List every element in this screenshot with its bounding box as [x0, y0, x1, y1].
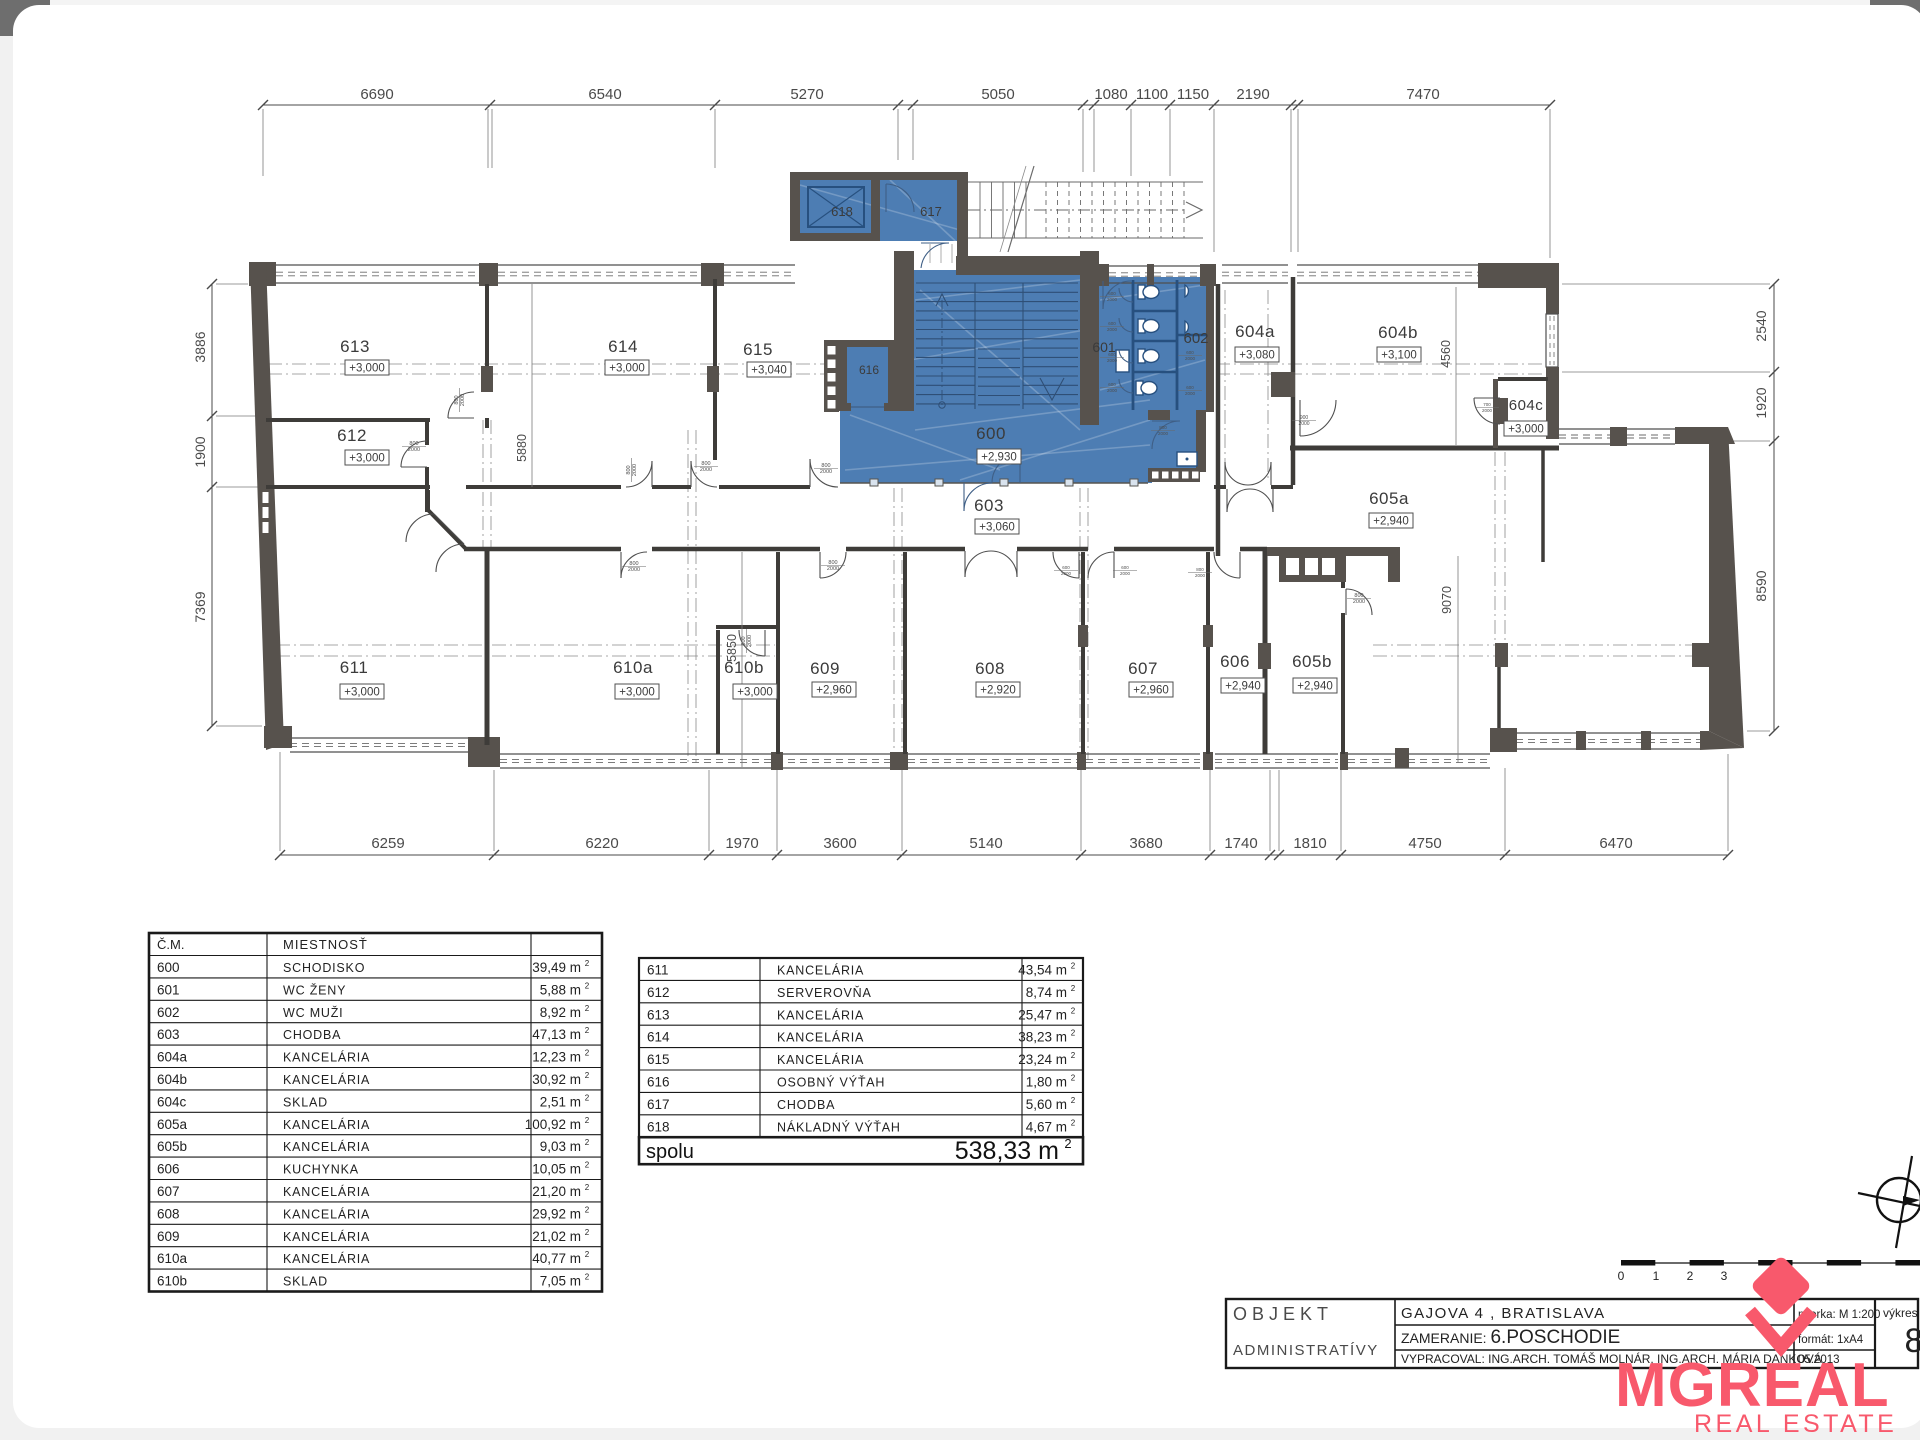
- svg-text:KUCHYNKA: KUCHYNKA: [283, 1163, 359, 1177]
- svg-text:2000: 2000: [1120, 571, 1131, 576]
- svg-text:REAL ESTATE: REAL ESTATE: [1694, 1410, 1897, 1438]
- svg-text:603: 603: [974, 496, 1004, 515]
- svg-text:2190: 2190: [1236, 86, 1269, 103]
- svg-text:KANCELÁRIA: KANCELÁRIA: [777, 1007, 864, 1022]
- svg-text:3680: 3680: [1129, 835, 1162, 852]
- svg-text:1080: 1080: [1094, 86, 1127, 103]
- svg-text:29,92 m: 29,92 m: [532, 1206, 581, 1221]
- svg-text:2: 2: [585, 1026, 590, 1035]
- svg-text:7470: 7470: [1406, 86, 1439, 103]
- svg-text:2: 2: [1071, 1029, 1076, 1038]
- svg-text:CHODBA: CHODBA: [283, 1028, 341, 1042]
- svg-text:614: 614: [608, 337, 638, 356]
- svg-text:608: 608: [975, 659, 1005, 678]
- svg-text:12,23 m: 12,23 m: [532, 1050, 581, 1065]
- svg-text:600: 600: [1186, 385, 1194, 390]
- svg-text:SCHODISKO: SCHODISKO: [283, 961, 365, 975]
- svg-text:100,92 m: 100,92 m: [525, 1117, 581, 1132]
- svg-text:23,24 m: 23,24 m: [1018, 1052, 1067, 1067]
- svg-text:603: 603: [157, 1027, 180, 1042]
- svg-text:600: 600: [976, 424, 1006, 443]
- svg-text:2: 2: [1071, 1074, 1076, 1083]
- svg-text:611: 611: [647, 963, 669, 978]
- svg-text:7369: 7369: [192, 591, 208, 622]
- svg-text:2000: 2000: [1107, 327, 1118, 332]
- svg-text:2000: 2000: [1158, 431, 1169, 436]
- svg-text:611: 611: [340, 658, 369, 677]
- svg-text:0: 0: [1618, 1269, 1625, 1283]
- svg-text:2: 2: [1071, 962, 1076, 971]
- svg-text:8590: 8590: [1753, 570, 1769, 601]
- svg-text:KANCELÁRIA: KANCELÁRIA: [777, 963, 864, 978]
- svg-text:+3,000: +3,000: [609, 363, 645, 375]
- svg-text:47,13 m: 47,13 m: [532, 1027, 581, 1042]
- svg-text:+3,100: +3,100: [1381, 350, 1417, 362]
- svg-text:10,05 m: 10,05 m: [532, 1162, 581, 1177]
- svg-text:2: 2: [1064, 1136, 1071, 1151]
- svg-text:2000: 2000: [1185, 356, 1196, 361]
- svg-text:2000: 2000: [1107, 388, 1118, 393]
- svg-text:4560: 4560: [1439, 340, 1453, 368]
- svg-text:605a: 605a: [157, 1117, 188, 1132]
- svg-text:6690: 6690: [360, 86, 393, 103]
- svg-text:600: 600: [1108, 291, 1116, 296]
- svg-text:38,23 m: 38,23 m: [1018, 1030, 1067, 1045]
- svg-text:21,20 m: 21,20 m: [532, 1184, 581, 1199]
- svg-text:KANCELÁRIA: KANCELÁRIA: [283, 1050, 370, 1065]
- svg-text:2: 2: [585, 1273, 590, 1282]
- svg-text:2: 2: [585, 1228, 590, 1237]
- svg-text:formát: 1xA4: formát: 1xA4: [1798, 1334, 1864, 1346]
- svg-text:25,47 m: 25,47 m: [1018, 1007, 1067, 1022]
- svg-text:700: 700: [1483, 402, 1491, 407]
- svg-text:600: 600: [1121, 565, 1129, 570]
- svg-text:5,60 m: 5,60 m: [1026, 1097, 1067, 1112]
- svg-text:604a: 604a: [157, 1050, 188, 1065]
- svg-text:614: 614: [647, 1030, 670, 1045]
- svg-text:5880: 5880: [515, 434, 529, 462]
- svg-text:KANCELÁRIA: KANCELÁRIA: [283, 1117, 370, 1132]
- svg-text:KANCELÁRIA: KANCELÁRIA: [283, 1072, 370, 1087]
- svg-text:615: 615: [647, 1052, 670, 1067]
- svg-text:spolu: spolu: [646, 1141, 694, 1163]
- svg-text:+3,000: +3,000: [619, 687, 655, 699]
- svg-text:výkres: výkres: [1883, 1306, 1918, 1320]
- svg-text:2: 2: [585, 1093, 590, 1102]
- svg-text:610a: 610a: [157, 1251, 188, 1266]
- svg-text:600: 600: [1108, 382, 1116, 387]
- svg-text:605b: 605b: [1292, 652, 1332, 671]
- svg-text:2000: 2000: [632, 464, 638, 476]
- svg-text:600: 600: [1186, 350, 1194, 355]
- svg-text:613: 613: [647, 1007, 670, 1022]
- svg-text:2: 2: [1071, 984, 1076, 993]
- svg-text:5270: 5270: [790, 86, 823, 103]
- svg-text:600: 600: [1062, 565, 1070, 570]
- svg-text:+3,080: +3,080: [1239, 350, 1275, 362]
- svg-text:KANCELÁRIA: KANCELÁRIA: [283, 1229, 370, 1244]
- svg-text:601: 601: [1092, 339, 1116, 355]
- svg-text:618: 618: [647, 1119, 670, 1134]
- svg-text:KANCELÁRIA: KANCELÁRIA: [777, 1030, 864, 1045]
- svg-text:2: 2: [585, 1205, 590, 1214]
- svg-text:1900: 1900: [192, 436, 208, 467]
- svg-text:604c: 604c: [157, 1094, 187, 1109]
- svg-text:2: 2: [585, 1138, 590, 1147]
- svg-text:+2,920: +2,920: [980, 685, 1016, 697]
- svg-text:607: 607: [157, 1184, 180, 1199]
- svg-text:7,05 m: 7,05 m: [540, 1274, 581, 1289]
- svg-text:+2,940: +2,940: [1225, 681, 1261, 693]
- svg-text:606: 606: [157, 1162, 180, 1177]
- svg-text:2000: 2000: [1482, 408, 1493, 413]
- svg-text:615: 615: [743, 340, 773, 359]
- svg-text:610b: 610b: [157, 1274, 187, 1289]
- svg-text:2: 2: [585, 1161, 590, 1170]
- svg-text:610b: 610b: [724, 658, 764, 677]
- svg-text:KANCELÁRIA: KANCELÁRIA: [283, 1206, 370, 1221]
- svg-text:8,74 m: 8,74 m: [1026, 985, 1067, 1000]
- svg-text:6540: 6540: [588, 86, 621, 103]
- svg-text:604c: 604c: [1509, 397, 1544, 414]
- svg-text:1100: 1100: [1136, 86, 1168, 103]
- svg-text:2,51 m: 2,51 m: [540, 1094, 581, 1109]
- svg-text:5,88 m: 5,88 m: [540, 982, 581, 997]
- svg-text:+2,960: +2,960: [1133, 685, 1169, 697]
- svg-text:2000: 2000: [408, 447, 420, 453]
- svg-text:SKLAD: SKLAD: [283, 1095, 328, 1109]
- svg-text:2: 2: [585, 1116, 590, 1125]
- svg-text:+3,060: +3,060: [979, 522, 1015, 534]
- svg-text:WC MUŽI: WC MUŽI: [283, 1005, 343, 1020]
- svg-text:2000: 2000: [460, 394, 466, 406]
- svg-text:609: 609: [157, 1229, 180, 1244]
- svg-text:+3,000: +3,000: [1508, 424, 1544, 436]
- svg-text:8,92 m: 8,92 m: [540, 1005, 581, 1020]
- svg-text:2: 2: [1071, 1118, 1076, 1127]
- svg-text:609: 609: [810, 659, 840, 678]
- svg-text:8: 8: [1905, 1322, 1920, 1360]
- svg-text:610a: 610a: [613, 658, 653, 677]
- svg-text:2000: 2000: [628, 567, 640, 573]
- svg-text:2000: 2000: [1107, 358, 1118, 363]
- svg-text:2000: 2000: [1353, 599, 1365, 605]
- svg-text:3: 3: [1721, 1269, 1728, 1283]
- svg-text:30,92 m: 30,92 m: [532, 1072, 581, 1087]
- svg-text:600: 600: [1108, 321, 1116, 326]
- svg-text:604a: 604a: [1235, 322, 1275, 341]
- svg-text:2: 2: [585, 1049, 590, 1058]
- svg-text:CHODBA: CHODBA: [777, 1098, 835, 1112]
- svg-text:WC ŽENY: WC ŽENY: [283, 982, 346, 997]
- svg-text:2: 2: [585, 1250, 590, 1259]
- svg-text:4,67 m: 4,67 m: [1026, 1119, 1067, 1134]
- svg-text:602: 602: [1183, 330, 1208, 347]
- svg-text:800: 800: [1196, 567, 1204, 572]
- svg-text:607: 607: [1128, 659, 1158, 678]
- svg-text:ZAMERANIE: 6.POSCHODIE: ZAMERANIE: 6.POSCHODIE: [1401, 1327, 1620, 1348]
- svg-text:1: 1: [1653, 1269, 1660, 1283]
- svg-text:+3,000: +3,000: [344, 687, 380, 699]
- svg-text:2000: 2000: [700, 467, 712, 473]
- svg-text:616: 616: [859, 363, 879, 377]
- svg-text:601: 601: [157, 982, 180, 997]
- svg-text:NÁKLADNÝ VÝŤAH: NÁKLADNÝ VÝŤAH: [777, 1119, 901, 1134]
- svg-text:MIESTNOSŤ: MIESTNOSŤ: [283, 937, 368, 952]
- svg-text:2: 2: [585, 1004, 590, 1013]
- svg-text:2000: 2000: [1061, 571, 1072, 576]
- svg-text:Č.M.: Č.M.: [157, 937, 184, 952]
- svg-text:612: 612: [337, 426, 367, 445]
- svg-text:1,80 m: 1,80 m: [1026, 1075, 1067, 1090]
- svg-text:538,33 m: 538,33 m: [955, 1137, 1059, 1165]
- svg-text:2: 2: [1071, 1051, 1076, 1060]
- svg-text:600: 600: [157, 960, 180, 975]
- svg-text:2000: 2000: [1195, 573, 1206, 578]
- svg-text:604b: 604b: [157, 1072, 187, 1087]
- svg-text:KANCELÁRIA: KANCELÁRIA: [283, 1251, 370, 1266]
- svg-text:SKLAD: SKLAD: [283, 1275, 328, 1289]
- svg-text:606: 606: [1220, 652, 1250, 671]
- svg-text:2000: 2000: [827, 566, 839, 572]
- svg-text:613: 613: [340, 337, 370, 356]
- svg-text:5050: 5050: [981, 86, 1014, 103]
- svg-text:3886: 3886: [192, 331, 208, 362]
- svg-text:2: 2: [1687, 1269, 1694, 1283]
- svg-text:604b: 604b: [1378, 323, 1418, 342]
- svg-text:1920: 1920: [1753, 387, 1769, 418]
- svg-text:3600: 3600: [823, 835, 856, 852]
- svg-text:6220: 6220: [585, 835, 618, 852]
- svg-text:5140: 5140: [969, 835, 1002, 852]
- svg-text:ADMINISTRATÍVY: ADMINISTRATÍVY: [1233, 1342, 1379, 1359]
- svg-text:+2,940: +2,940: [1297, 681, 1333, 693]
- svg-text:+3,000: +3,000: [349, 363, 385, 375]
- svg-text:2000: 2000: [1185, 391, 1196, 396]
- svg-text:1150: 1150: [1177, 86, 1209, 103]
- svg-text:617: 617: [647, 1097, 670, 1112]
- svg-text:2: 2: [585, 1071, 590, 1080]
- svg-text:9070: 9070: [1440, 586, 1454, 614]
- svg-text:800: 800: [1159, 425, 1167, 430]
- svg-text:1970: 1970: [725, 835, 758, 852]
- svg-text:4750: 4750: [1408, 835, 1441, 852]
- svg-text:6259: 6259: [371, 835, 404, 852]
- svg-text:2000: 2000: [820, 469, 832, 475]
- svg-text:21,02 m: 21,02 m: [532, 1229, 581, 1244]
- svg-text:2: 2: [1071, 1096, 1076, 1105]
- svg-text:605b: 605b: [157, 1139, 187, 1154]
- svg-text:2: 2: [585, 981, 590, 990]
- svg-text:GAJOVA 4 , BRATISLAVA: GAJOVA 4 , BRATISLAVA: [1401, 1305, 1606, 1322]
- svg-text:+3,000: +3,000: [349, 453, 385, 465]
- svg-text:2000: 2000: [747, 635, 753, 647]
- svg-text:608: 608: [157, 1206, 180, 1221]
- svg-text:2: 2: [1071, 1006, 1076, 1015]
- svg-text:SERVEROVŇA: SERVEROVŇA: [777, 985, 872, 1000]
- svg-text:+2,930: +2,930: [981, 452, 1017, 464]
- svg-text:+2,940: +2,940: [1373, 516, 1409, 528]
- svg-text:+3,000: +3,000: [737, 687, 773, 699]
- svg-text:605a: 605a: [1369, 489, 1409, 508]
- svg-text:1810: 1810: [1293, 835, 1326, 852]
- svg-text:OSOBNÝ VÝŤAH: OSOBNÝ VÝŤAH: [777, 1075, 885, 1090]
- svg-text:1740: 1740: [1224, 835, 1257, 852]
- svg-text:39,49 m: 39,49 m: [532, 960, 581, 975]
- svg-text:2000: 2000: [1107, 297, 1118, 302]
- svg-text:2: 2: [585, 959, 590, 968]
- svg-text:+3,040: +3,040: [751, 365, 787, 377]
- svg-text:KANCELÁRIA: KANCELÁRIA: [777, 1052, 864, 1067]
- svg-text:2540: 2540: [1753, 310, 1769, 341]
- svg-text:40,77 m: 40,77 m: [532, 1251, 581, 1266]
- svg-text:617: 617: [920, 204, 942, 219]
- svg-text:602: 602: [157, 1005, 180, 1020]
- svg-text:6470: 6470: [1599, 835, 1632, 852]
- svg-text:9,03 m: 9,03 m: [540, 1139, 581, 1154]
- svg-text:KANCELÁRIA: KANCELÁRIA: [283, 1139, 370, 1154]
- svg-text:OBJEKT: OBJEKT: [1233, 1304, 1333, 1324]
- svg-text:2: 2: [585, 1183, 590, 1192]
- svg-text:616: 616: [647, 1075, 670, 1090]
- svg-text:43,54 m: 43,54 m: [1018, 963, 1067, 978]
- svg-text:+2,960: +2,960: [816, 685, 852, 697]
- svg-text:2000: 2000: [1298, 421, 1309, 427]
- svg-text:KANCELÁRIA: KANCELÁRIA: [283, 1184, 370, 1199]
- svg-text:618: 618: [831, 204, 853, 219]
- svg-text:612: 612: [647, 985, 670, 1000]
